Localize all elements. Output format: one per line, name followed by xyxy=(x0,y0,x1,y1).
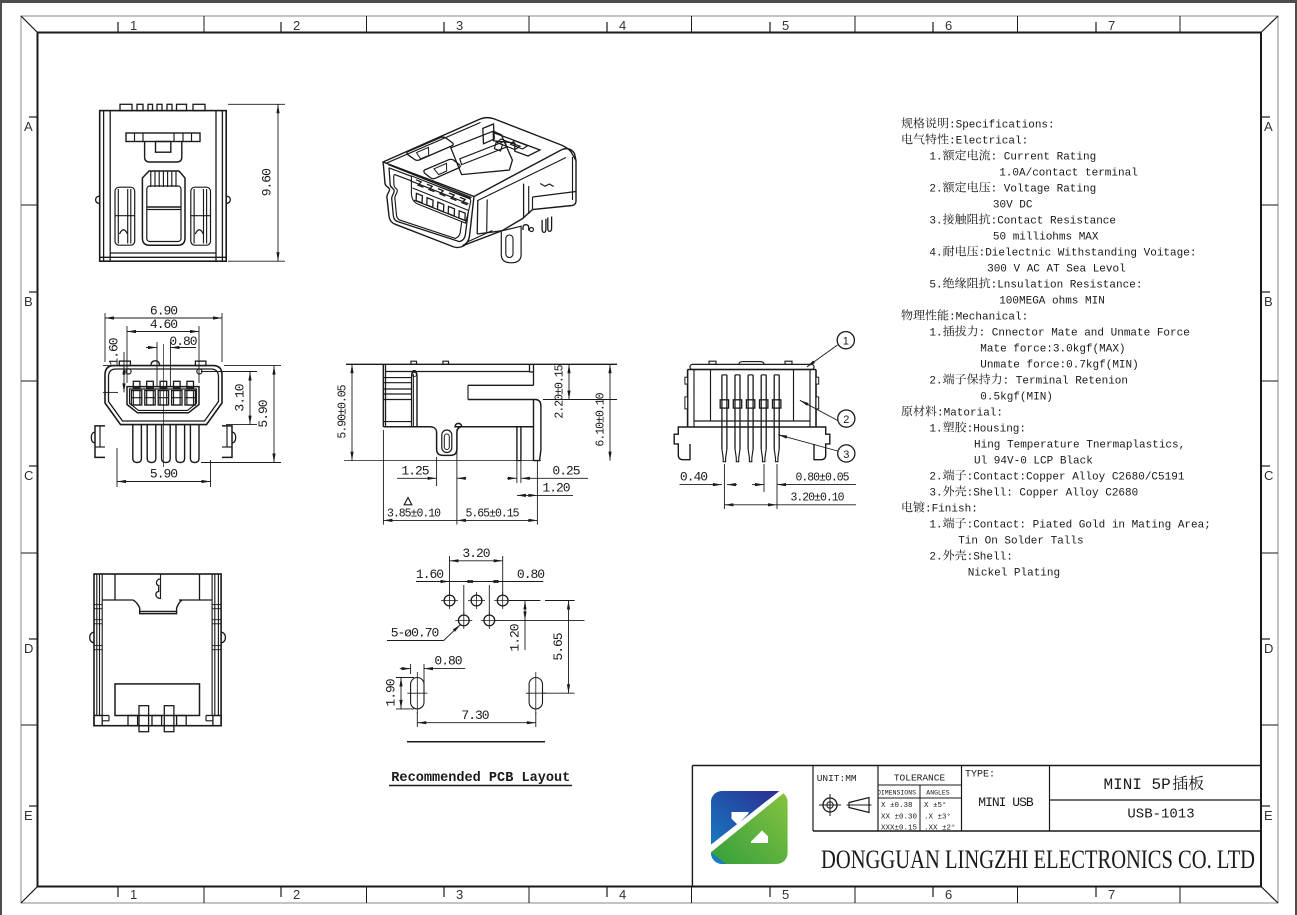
svg-text:7: 7 xyxy=(1108,887,1115,902)
svg-text:Mate force:3.0kgf(MAX): Mate force:3.0kgf(MAX) xyxy=(980,344,1125,356)
svg-text:B: B xyxy=(24,294,33,309)
svg-text:0.80: 0.80 xyxy=(434,654,461,669)
svg-text:7: 7 xyxy=(1108,18,1115,33)
svg-text:Nickel Plating: Nickel Plating xyxy=(968,568,1060,580)
svg-text:1: 1 xyxy=(130,887,137,902)
svg-text:X ±0.38: X ±0.38 xyxy=(881,802,913,810)
svg-text:2: 2 xyxy=(843,414,849,426)
svg-text:1.: 1. xyxy=(929,152,942,164)
svg-text:E: E xyxy=(1264,808,1273,823)
svg-text::Dielectnic Withstanding Voita: :Dielectnic Withstanding Voitage: xyxy=(979,248,1197,260)
svg-text:Recommended PCB Layout: Recommended PCB Layout xyxy=(391,770,570,786)
svg-text::Mechanical:: :Mechanical: xyxy=(949,312,1028,324)
svg-text:4: 4 xyxy=(619,18,626,33)
svg-text::Lnsulation Resistance:: :Lnsulation Resistance: xyxy=(991,280,1143,292)
svg-text:USB-1013: USB-1013 xyxy=(1127,807,1194,823)
svg-text:2: 2 xyxy=(293,18,300,33)
svg-text:D: D xyxy=(24,641,33,656)
svg-text::Contact: Piated Gold in Matin: :Contact: Piated Gold in Mating Area; xyxy=(967,520,1211,532)
svg-text:5-ø0.70: 5-ø0.70 xyxy=(391,626,439,641)
svg-text:C: C xyxy=(24,468,33,483)
svg-text:2.: 2. xyxy=(929,184,942,196)
svg-text:30V DC: 30V DC xyxy=(993,200,1033,212)
svg-text:.XX ±2°: .XX ±2° xyxy=(924,824,956,833)
svg-text:UNIT:MM: UNIT:MM xyxy=(817,773,857,784)
svg-text:A: A xyxy=(24,119,33,134)
svg-text:3: 3 xyxy=(843,449,849,461)
svg-text:6: 6 xyxy=(945,18,952,33)
svg-text:4.60: 4.60 xyxy=(150,317,177,332)
svg-text::Shell:: :Shell: xyxy=(967,552,1013,564)
svg-text:5: 5 xyxy=(782,887,789,902)
svg-text:3.: 3. xyxy=(929,488,942,500)
svg-text:7.30: 7.30 xyxy=(461,708,488,723)
svg-text::Housing:: :Housing: xyxy=(967,424,1026,436)
svg-text::Matorial:: :Matorial: xyxy=(937,408,1003,420)
svg-text:2.20±0.15: 2.20±0.15 xyxy=(554,364,567,418)
svg-text:MINI 5P: MINI 5P xyxy=(1104,776,1171,794)
svg-text:3: 3 xyxy=(456,887,463,902)
svg-text:5: 5 xyxy=(782,18,789,33)
svg-text::Finish:: :Finish: xyxy=(925,504,978,516)
svg-text:E: E xyxy=(24,808,33,823)
svg-text:: Current Rating: : Current Rating xyxy=(991,152,1097,164)
svg-text::Electrical:: :Electrical: xyxy=(949,136,1028,148)
svg-text:MINI USB: MINI USB xyxy=(978,795,1034,810)
svg-text:2.: 2. xyxy=(929,552,942,564)
svg-text:0.25: 0.25 xyxy=(552,464,579,479)
svg-text:X ±5°: X ±5° xyxy=(924,801,947,810)
svg-text:Hing Temperature Tnermaplasti: Hing Temperature Tnermaplastics, xyxy=(974,440,1185,452)
svg-text:5.90: 5.90 xyxy=(256,400,271,427)
svg-text:TOLERANCE: TOLERANCE xyxy=(894,773,946,784)
svg-text:TYPE:: TYPE: xyxy=(965,770,995,781)
svg-text:2: 2 xyxy=(293,887,300,902)
svg-text:DONGGUAN LINGZHI ELECTRONICS C: DONGGUAN LINGZHI ELECTRONICS CO. LTD xyxy=(821,845,1255,874)
svg-text::Specifications:: :Specifications: xyxy=(949,120,1055,132)
svg-text:5.: 5. xyxy=(929,280,942,292)
svg-text:.X ±3°: .X ±3° xyxy=(924,813,951,822)
svg-text:: Terminal Retenion: : Terminal Retenion xyxy=(1003,376,1128,388)
svg-text:Tin On Solder Talls: Tin On Solder Talls xyxy=(958,536,1083,548)
svg-text:0.80: 0.80 xyxy=(169,334,196,349)
svg-text:300 V AC AT Sea Levol: 300 V AC AT Sea Levol xyxy=(987,264,1126,276)
svg-text:D: D xyxy=(1264,641,1273,656)
svg-text:0.80: 0.80 xyxy=(517,567,544,582)
svg-text:3: 3 xyxy=(456,18,463,33)
svg-text:1.90: 1.90 xyxy=(384,679,399,706)
svg-text:1: 1 xyxy=(130,18,137,33)
svg-text:XXX±0.15: XXX±0.15 xyxy=(881,825,918,833)
svg-text:6.10±0.10: 6.10±0.10 xyxy=(595,392,608,446)
svg-text:9.60: 9.60 xyxy=(260,169,275,196)
svg-text:0.80±0.05: 0.80±0.05 xyxy=(795,472,849,485)
svg-text:3.10: 3.10 xyxy=(233,384,248,411)
svg-text::Shell: Copper Alloy C2680: :Shell: Copper Alloy C2680 xyxy=(967,488,1139,500)
svg-text::Contact Resistance: :Contact Resistance xyxy=(991,216,1116,228)
svg-text:4: 4 xyxy=(619,887,626,902)
svg-text:0.40: 0.40 xyxy=(680,470,707,485)
svg-text:1.0A/contact terminal: 1.0A/contact terminal xyxy=(999,168,1138,180)
svg-text:2.: 2. xyxy=(929,472,942,484)
svg-text:ANGLES: ANGLES xyxy=(926,790,950,797)
svg-text:C: C xyxy=(1264,468,1273,483)
svg-text:1.60: 1.60 xyxy=(107,338,122,365)
svg-text:3.20±0.10: 3.20±0.10 xyxy=(790,492,844,505)
svg-text:5.90: 5.90 xyxy=(150,467,177,482)
svg-text:100MEGA ohms MIN: 100MEGA ohms MIN xyxy=(999,296,1105,308)
svg-text:5.90±0.05: 5.90±0.05 xyxy=(337,384,350,438)
svg-text::Contact:Copper Alloy C2680/C5: :Contact:Copper Alloy C2680/C5191 xyxy=(967,472,1185,484)
svg-text:6: 6 xyxy=(945,887,952,902)
svg-text:B: B xyxy=(1264,294,1273,309)
svg-text:DIMENSIONS: DIMENSIONS xyxy=(877,790,916,797)
svg-text:1.: 1. xyxy=(929,520,942,532)
svg-text:50 milliohms MAX: 50 milliohms MAX xyxy=(993,232,1099,244)
svg-text:: Cnnector Mate and Unmate For: : Cnnector Mate and Unmate Force xyxy=(979,328,1190,340)
svg-text:3.85±0.10: 3.85±0.10 xyxy=(387,507,441,520)
svg-text:1: 1 xyxy=(843,336,849,348)
svg-text:3.: 3. xyxy=(929,216,942,228)
svg-text:1.20: 1.20 xyxy=(508,624,523,651)
svg-text:XX ±0.30: XX ±0.30 xyxy=(881,814,918,822)
svg-text:4.: 4. xyxy=(929,248,942,260)
svg-text:5.65: 5.65 xyxy=(551,633,566,660)
svg-text:1.20: 1.20 xyxy=(542,481,569,496)
svg-text:0.5kgf(MIN): 0.5kgf(MIN) xyxy=(980,392,1053,404)
svg-text:Unmate force:0.7kgf(MIN): Unmate force:0.7kgf(MIN) xyxy=(980,360,1138,372)
svg-text:1.60: 1.60 xyxy=(416,567,443,582)
svg-text:: Voltage Rating: : Voltage Rating xyxy=(991,184,1097,196)
svg-text:3.20: 3.20 xyxy=(462,546,489,561)
svg-text:Ul 94V-0 LCP Black: Ul 94V-0 LCP Black xyxy=(974,456,1093,468)
svg-text:2.: 2. xyxy=(929,376,942,388)
svg-text:A: A xyxy=(1264,119,1273,134)
svg-text:1.: 1. xyxy=(929,424,942,436)
svg-text:1.: 1. xyxy=(929,328,942,340)
svg-text:5.65±0.15: 5.65±0.15 xyxy=(465,507,519,520)
svg-text:1.25: 1.25 xyxy=(401,464,428,479)
